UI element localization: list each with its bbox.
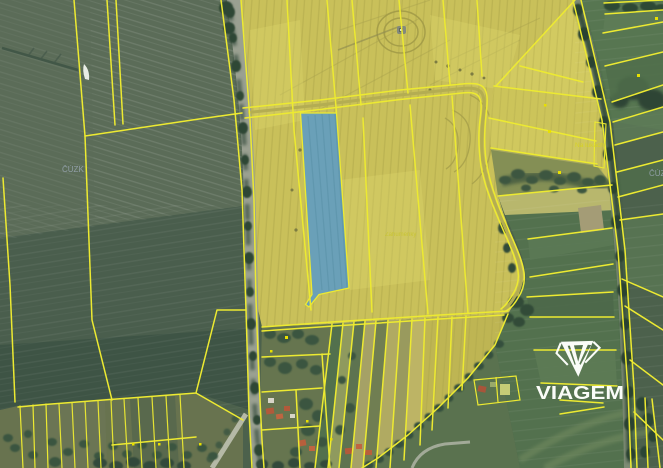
svg-text:VIAGEM: VIAGEM bbox=[536, 383, 624, 403]
svg-text:ČÚZK: ČÚZK bbox=[649, 169, 663, 178]
svg-text:Zahumenky: Zahumenky bbox=[385, 232, 416, 238]
svg-text:ČÚZK: ČÚZK bbox=[62, 165, 84, 174]
svg-text:Na lukách: Na lukách bbox=[575, 142, 604, 149]
